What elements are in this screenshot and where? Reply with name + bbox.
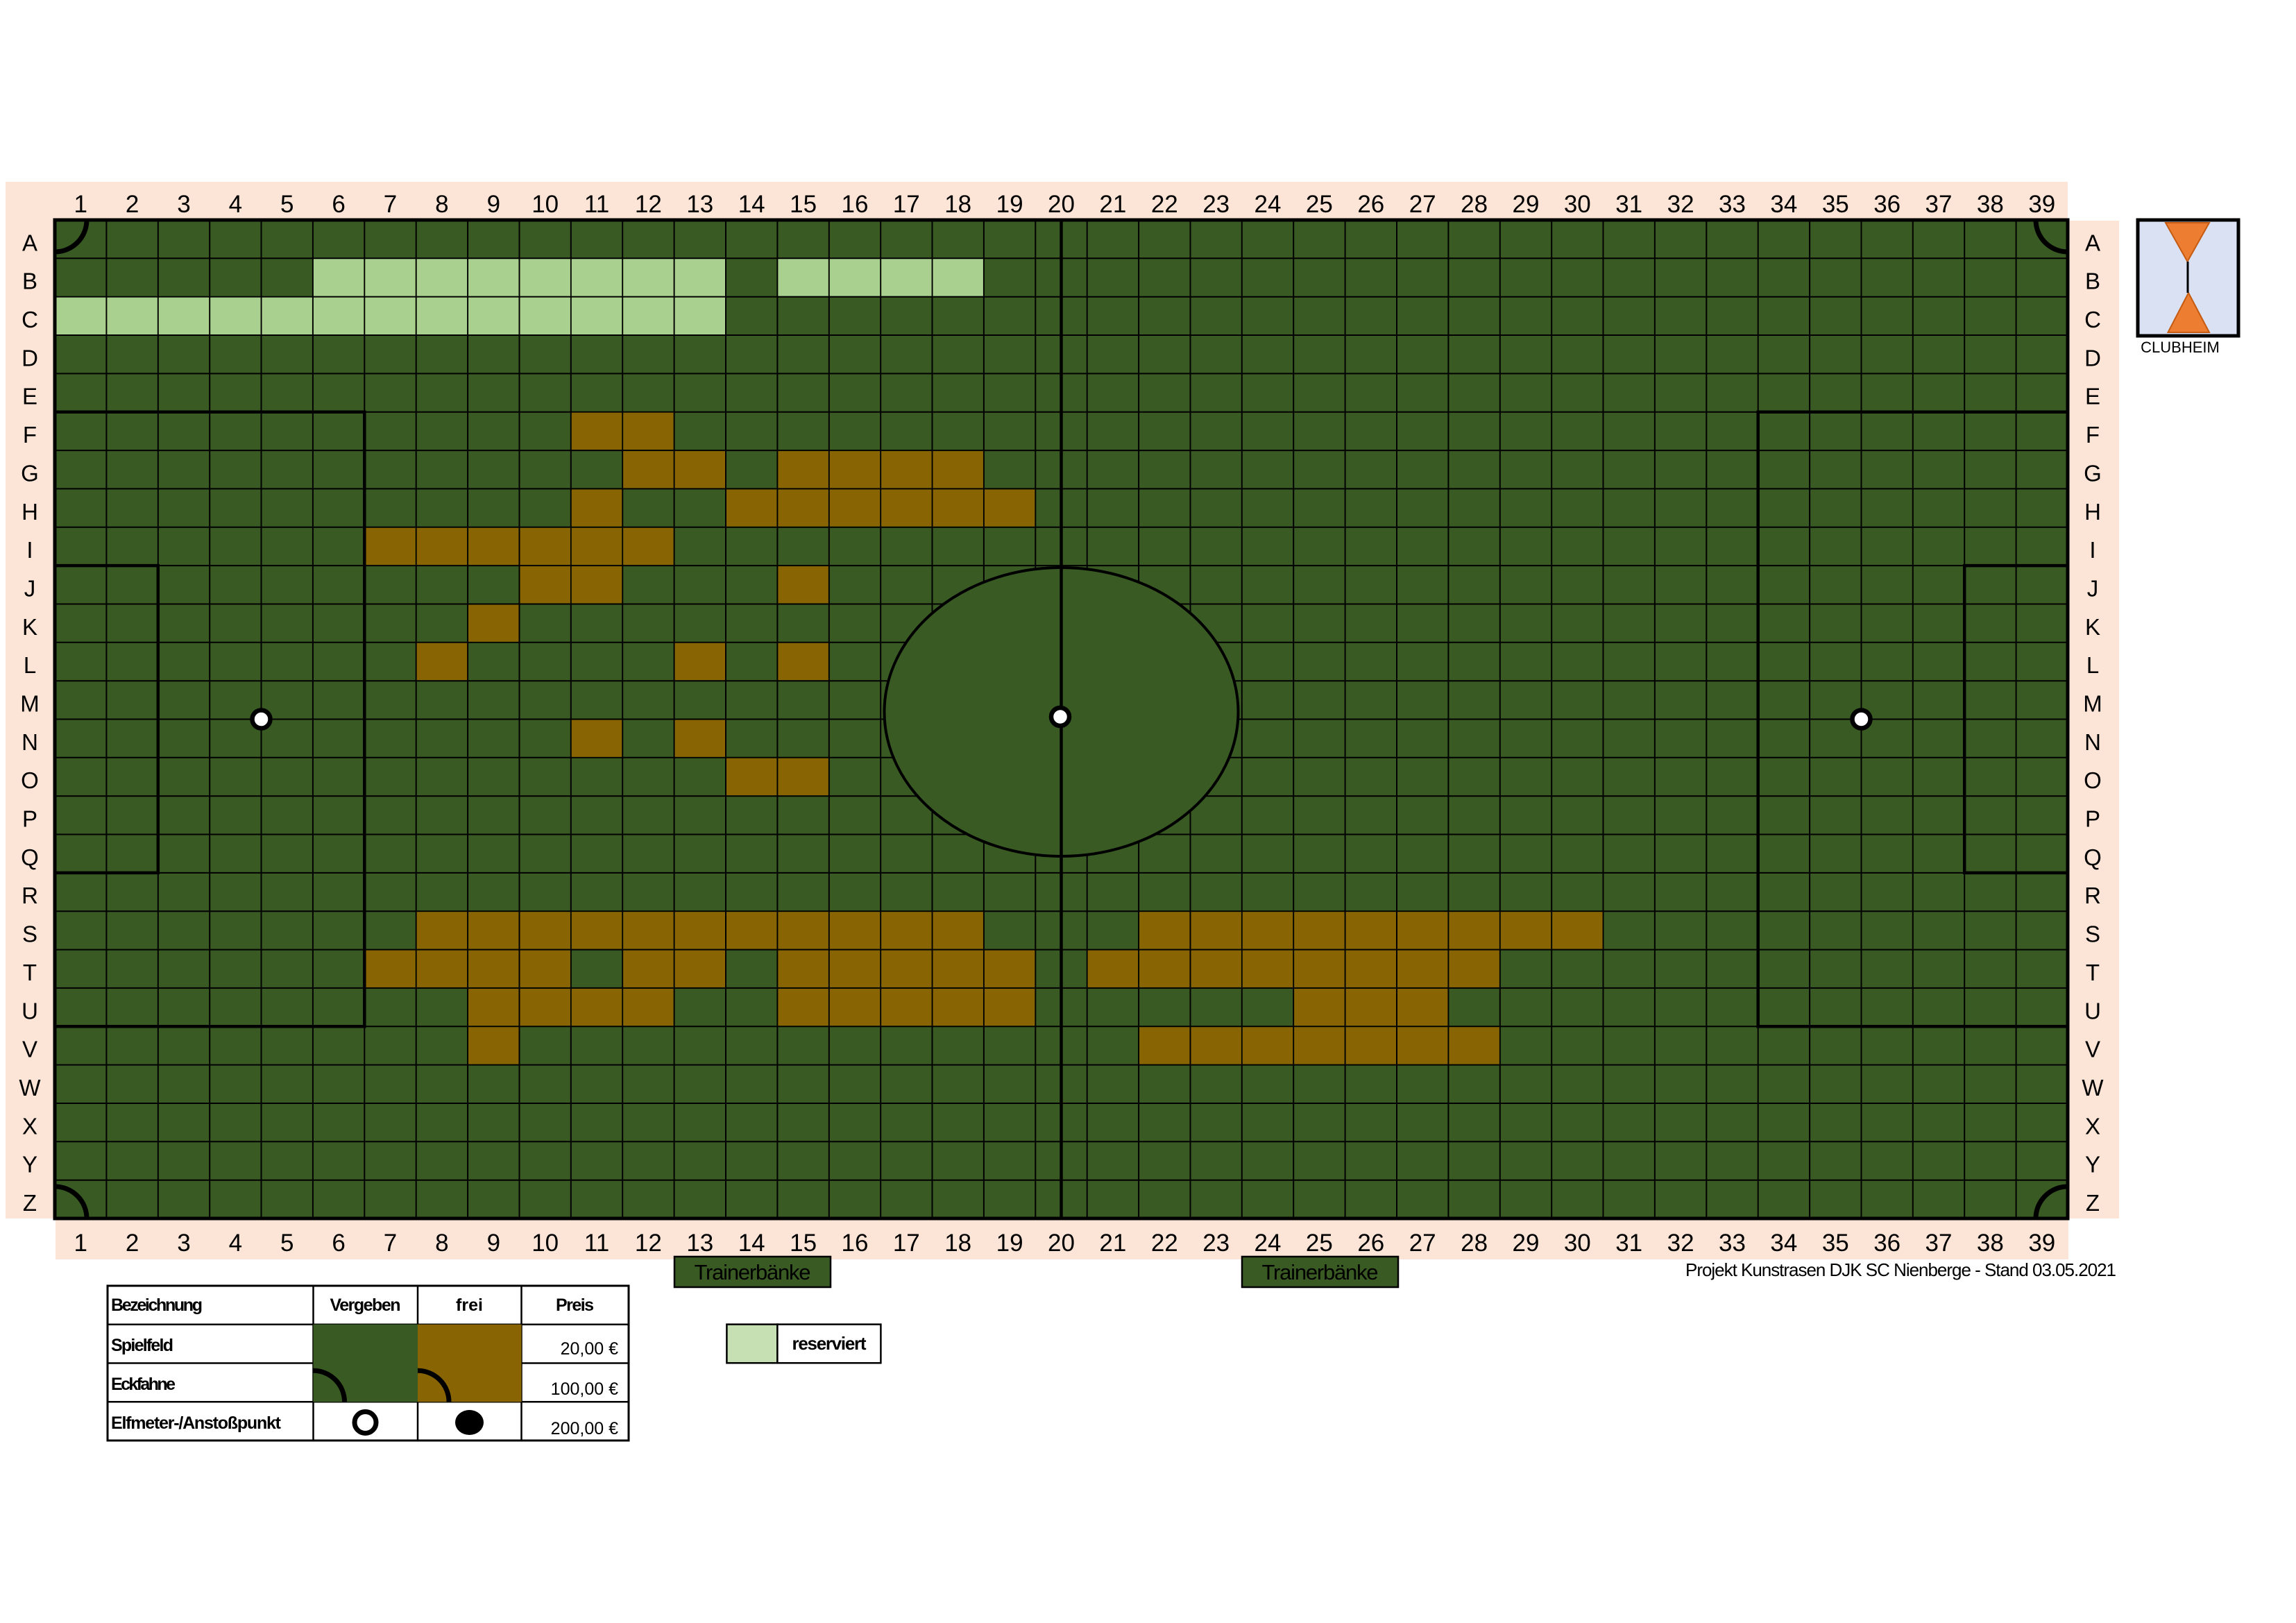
svg-text:C: C [2084,307,2101,332]
svg-text:9: 9 [487,191,500,218]
svg-text:16: 16 [842,191,869,218]
svg-text:B: B [22,269,37,294]
svg-text:20: 20 [1048,1230,1075,1257]
svg-text:19: 19 [996,1230,1023,1257]
svg-text:5: 5 [280,1230,294,1257]
svg-text:34: 34 [1770,1230,1797,1257]
svg-text:A: A [2085,230,2100,255]
svg-text:Projekt Kunstrasen DJK SC Nien: Projekt Kunstrasen DJK SC Nienberge - St… [1685,1259,2116,1280]
svg-text:Vergeben: Vergeben [330,1295,401,1315]
svg-text:20: 20 [1048,191,1075,218]
svg-text:P: P [22,806,37,832]
svg-text:12: 12 [635,191,662,218]
svg-text:4: 4 [229,191,242,218]
svg-text:18: 18 [944,1230,971,1257]
svg-text:25: 25 [1306,191,1333,218]
svg-text:24: 24 [1255,191,1282,218]
svg-text:Z: Z [2086,1190,2100,1216]
svg-text:2: 2 [126,191,139,218]
svg-text:30: 30 [1564,191,1591,218]
svg-text:36: 36 [1873,1230,1900,1257]
svg-text:E: E [22,384,37,409]
svg-text:U: U [22,998,38,1023]
svg-text:13: 13 [686,1230,713,1257]
svg-text:K: K [2085,614,2100,640]
svg-text:A: A [22,230,37,255]
svg-text:17: 17 [893,1230,920,1257]
svg-text:23: 23 [1202,191,1230,218]
svg-text:U: U [2084,998,2101,1023]
svg-text:22: 22 [1151,191,1178,218]
svg-text:frei: frei [456,1295,483,1315]
svg-text:38: 38 [1977,1230,2004,1257]
svg-text:34: 34 [1770,191,1797,218]
svg-text:10: 10 [532,1230,559,1257]
svg-text:K: K [22,614,37,640]
svg-text:H: H [22,499,38,525]
svg-text:200,00 €: 200,00 € [551,1419,618,1438]
svg-text:10: 10 [532,191,559,218]
svg-text:T: T [23,960,37,985]
svg-text:27: 27 [1409,191,1436,218]
svg-text:100,00 €: 100,00 € [551,1379,618,1399]
svg-text:15: 15 [790,191,817,218]
svg-text:15: 15 [790,1230,817,1257]
svg-text:M: M [2083,691,2102,717]
svg-text:1: 1 [74,1230,87,1257]
svg-text:W: W [19,1075,41,1101]
svg-text:Trainerbänke: Trainerbänke [695,1260,811,1284]
svg-text:F: F [23,422,37,448]
svg-text:reserviert: reserviert [792,1333,867,1354]
svg-text:J: J [24,576,36,602]
svg-text:S: S [2085,921,2100,947]
svg-text:39: 39 [2028,1230,2055,1257]
svg-text:22: 22 [1151,1230,1178,1257]
svg-text:29: 29 [1513,1230,1540,1257]
svg-text:CLUBHEIM: CLUBHEIM [2141,339,2220,356]
svg-text:14: 14 [738,1230,765,1257]
svg-text:4: 4 [229,1230,242,1257]
svg-text:G: G [21,460,39,486]
svg-text:7: 7 [384,191,397,218]
svg-text:Y: Y [22,1152,37,1178]
svg-text:Preis: Preis [556,1295,594,1315]
svg-text:Trainerbänke: Trainerbänke [1262,1260,1379,1284]
svg-text:S: S [22,921,37,947]
svg-text:O: O [2084,767,2102,793]
svg-text:16: 16 [842,1230,869,1257]
svg-text:11: 11 [584,191,609,218]
svg-text:R: R [2084,883,2101,908]
svg-text:O: O [21,767,39,793]
svg-text:33: 33 [1719,191,1746,218]
svg-text:32: 32 [1667,1230,1694,1257]
svg-text:12: 12 [635,1230,662,1257]
svg-text:G: G [2084,460,2102,486]
svg-text:Elfmeter-/Anstoßpunkt: Elfmeter-/Anstoßpunkt [111,1413,282,1433]
svg-text:21: 21 [1099,1230,1126,1257]
svg-text:31: 31 [1615,1230,1642,1257]
svg-text:38: 38 [1977,191,2004,218]
svg-text:11: 11 [584,1230,609,1257]
svg-text:X: X [2085,1113,2100,1139]
svg-text:B: B [2085,269,2100,294]
svg-text:7: 7 [384,1230,397,1257]
svg-text:27: 27 [1409,1230,1436,1257]
svg-text:Z: Z [23,1190,37,1216]
svg-text:37: 37 [1925,1230,1953,1257]
svg-text:32: 32 [1667,191,1694,218]
svg-text:R: R [22,883,38,908]
svg-text:35: 35 [1822,191,1849,218]
svg-text:N: N [22,729,38,755]
svg-text:V: V [2085,1037,2100,1062]
svg-text:L: L [2086,652,2099,678]
svg-text:35: 35 [1822,1230,1849,1257]
svg-text:M: M [20,691,40,717]
svg-text:N: N [2084,729,2101,755]
svg-text:P: P [2085,806,2100,832]
svg-text:39: 39 [2028,191,2055,218]
svg-text:20,00 €: 20,00 € [561,1339,619,1359]
svg-text:13: 13 [686,191,713,218]
svg-text:31: 31 [1615,191,1642,218]
svg-text:I: I [2089,537,2095,563]
svg-text:26: 26 [1357,1230,1384,1257]
svg-text:Eckfahne: Eckfahne [111,1375,176,1394]
svg-text:23: 23 [1202,1230,1230,1257]
svg-text:X: X [22,1113,37,1139]
svg-text:6: 6 [332,191,345,218]
svg-text:17: 17 [893,191,920,218]
svg-text:8: 8 [435,191,448,218]
svg-text:L: L [24,652,36,678]
svg-text:28: 28 [1461,191,1488,218]
svg-text:W: W [2082,1075,2104,1101]
svg-text:28: 28 [1461,1230,1488,1257]
svg-text:30: 30 [1564,1230,1591,1257]
svg-text:8: 8 [435,1230,448,1257]
svg-text:29: 29 [1513,191,1540,218]
svg-text:I: I [26,537,33,563]
svg-text:H: H [2084,499,2101,525]
svg-text:9: 9 [487,1230,500,1257]
svg-text:E: E [2085,384,2100,409]
svg-text:14: 14 [738,191,765,218]
svg-text:D: D [22,345,38,371]
svg-text:F: F [2086,422,2100,448]
svg-text:Spielfeld: Spielfeld [111,1336,173,1355]
svg-text:Q: Q [2084,844,2102,870]
svg-text:V: V [22,1037,37,1062]
svg-text:26: 26 [1357,191,1384,218]
svg-text:Q: Q [21,844,39,870]
svg-text:5: 5 [280,191,294,218]
svg-text:19: 19 [996,191,1023,218]
svg-text:6: 6 [332,1230,345,1257]
svg-text:Bezeichnung: Bezeichnung [111,1295,203,1315]
svg-text:3: 3 [177,1230,190,1257]
svg-text:25: 25 [1306,1230,1333,1257]
svg-text:Y: Y [2085,1152,2100,1178]
svg-text:J: J [2087,576,2099,602]
svg-text:36: 36 [1873,191,1900,218]
svg-text:18: 18 [944,191,971,218]
svg-text:37: 37 [1925,191,1953,218]
svg-text:24: 24 [1255,1230,1282,1257]
svg-text:1: 1 [74,191,87,218]
svg-text:21: 21 [1099,191,1126,218]
svg-text:33: 33 [1719,1230,1746,1257]
svg-text:2: 2 [126,1230,139,1257]
svg-text:T: T [2086,960,2100,985]
svg-text:D: D [2084,345,2101,371]
svg-text:C: C [22,307,38,332]
svg-text:3: 3 [177,191,190,218]
